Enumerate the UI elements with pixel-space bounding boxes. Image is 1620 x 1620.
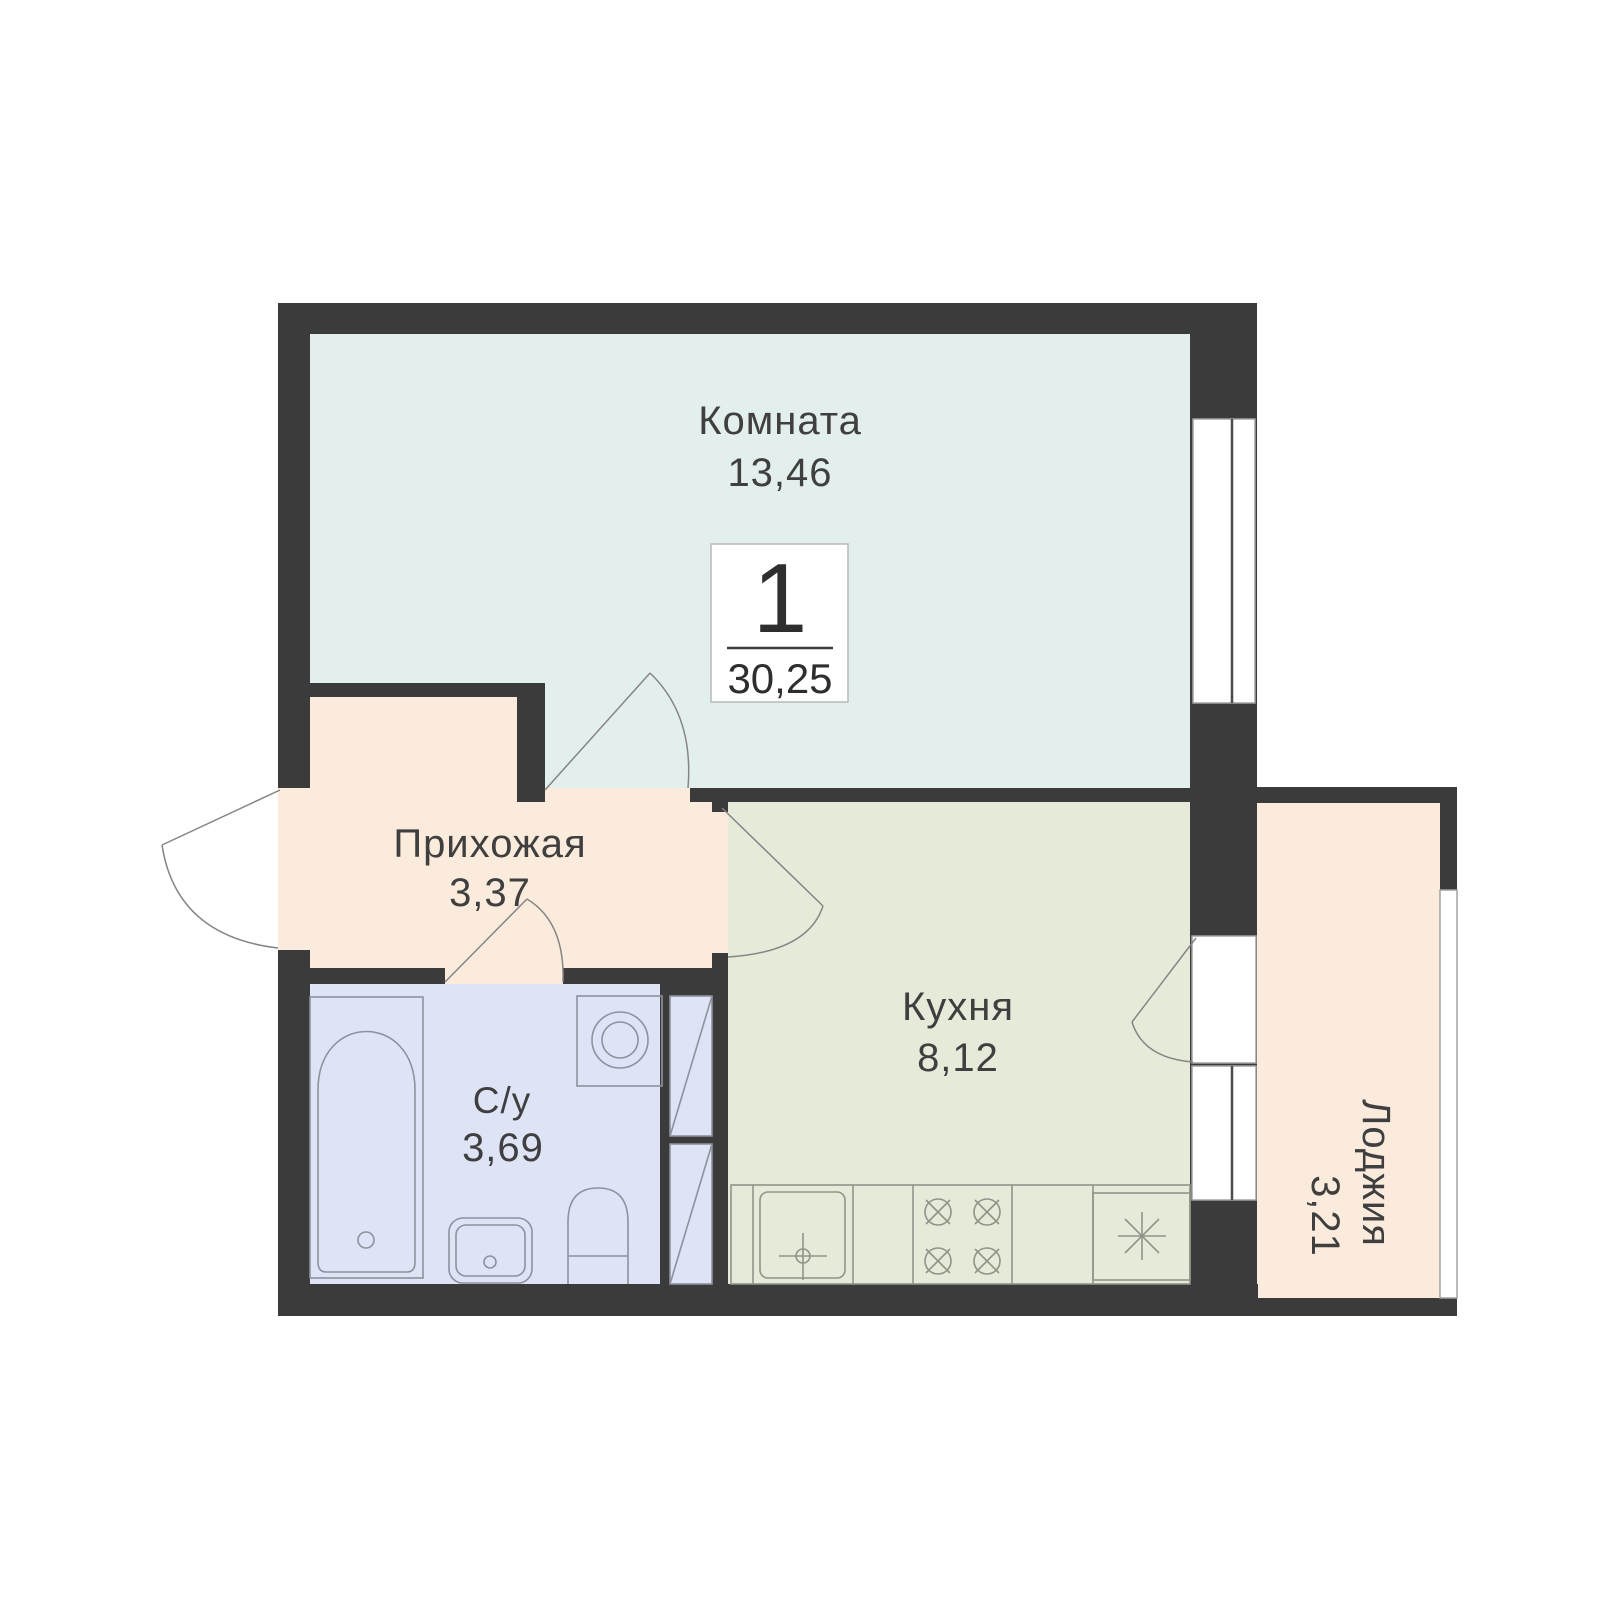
room-area: 13,46	[727, 451, 832, 495]
plan-badge: 1 30,25	[711, 543, 848, 702]
kitchen-area: 8,12	[917, 1036, 999, 1080]
hallway-label: Прихожая	[393, 822, 586, 866]
room-label: Комната	[698, 399, 862, 443]
loggia-floor	[1257, 803, 1440, 1298]
loggia-glazing	[1440, 890, 1457, 1298]
loggia-label: Лоджия	[1354, 1099, 1398, 1247]
loggia-area: 3,21	[1303, 1175, 1347, 1257]
balcony-window	[1192, 1066, 1256, 1200]
bathroom-label: С/у	[473, 1080, 532, 1121]
entrance-door-swing	[162, 790, 280, 948]
floor-plan-svg: Комната 13,46 Прихожая 3,37 С/у 3,69 Кух…	[0, 0, 1620, 1620]
badge-room-count: 1	[753, 543, 808, 653]
room-window	[1193, 419, 1255, 703]
bathroom-area: 3,69	[462, 1126, 544, 1170]
kitchen-label: Кухня	[902, 985, 1014, 1029]
balcony-door-opening	[1192, 936, 1256, 1063]
hallway-area: 3,37	[449, 871, 531, 915]
floor-plan-page: Комната 13,46 Прихожая 3,37 С/у 3,69 Кух…	[0, 0, 1620, 1620]
badge-total-area: 30,25	[727, 655, 832, 702]
